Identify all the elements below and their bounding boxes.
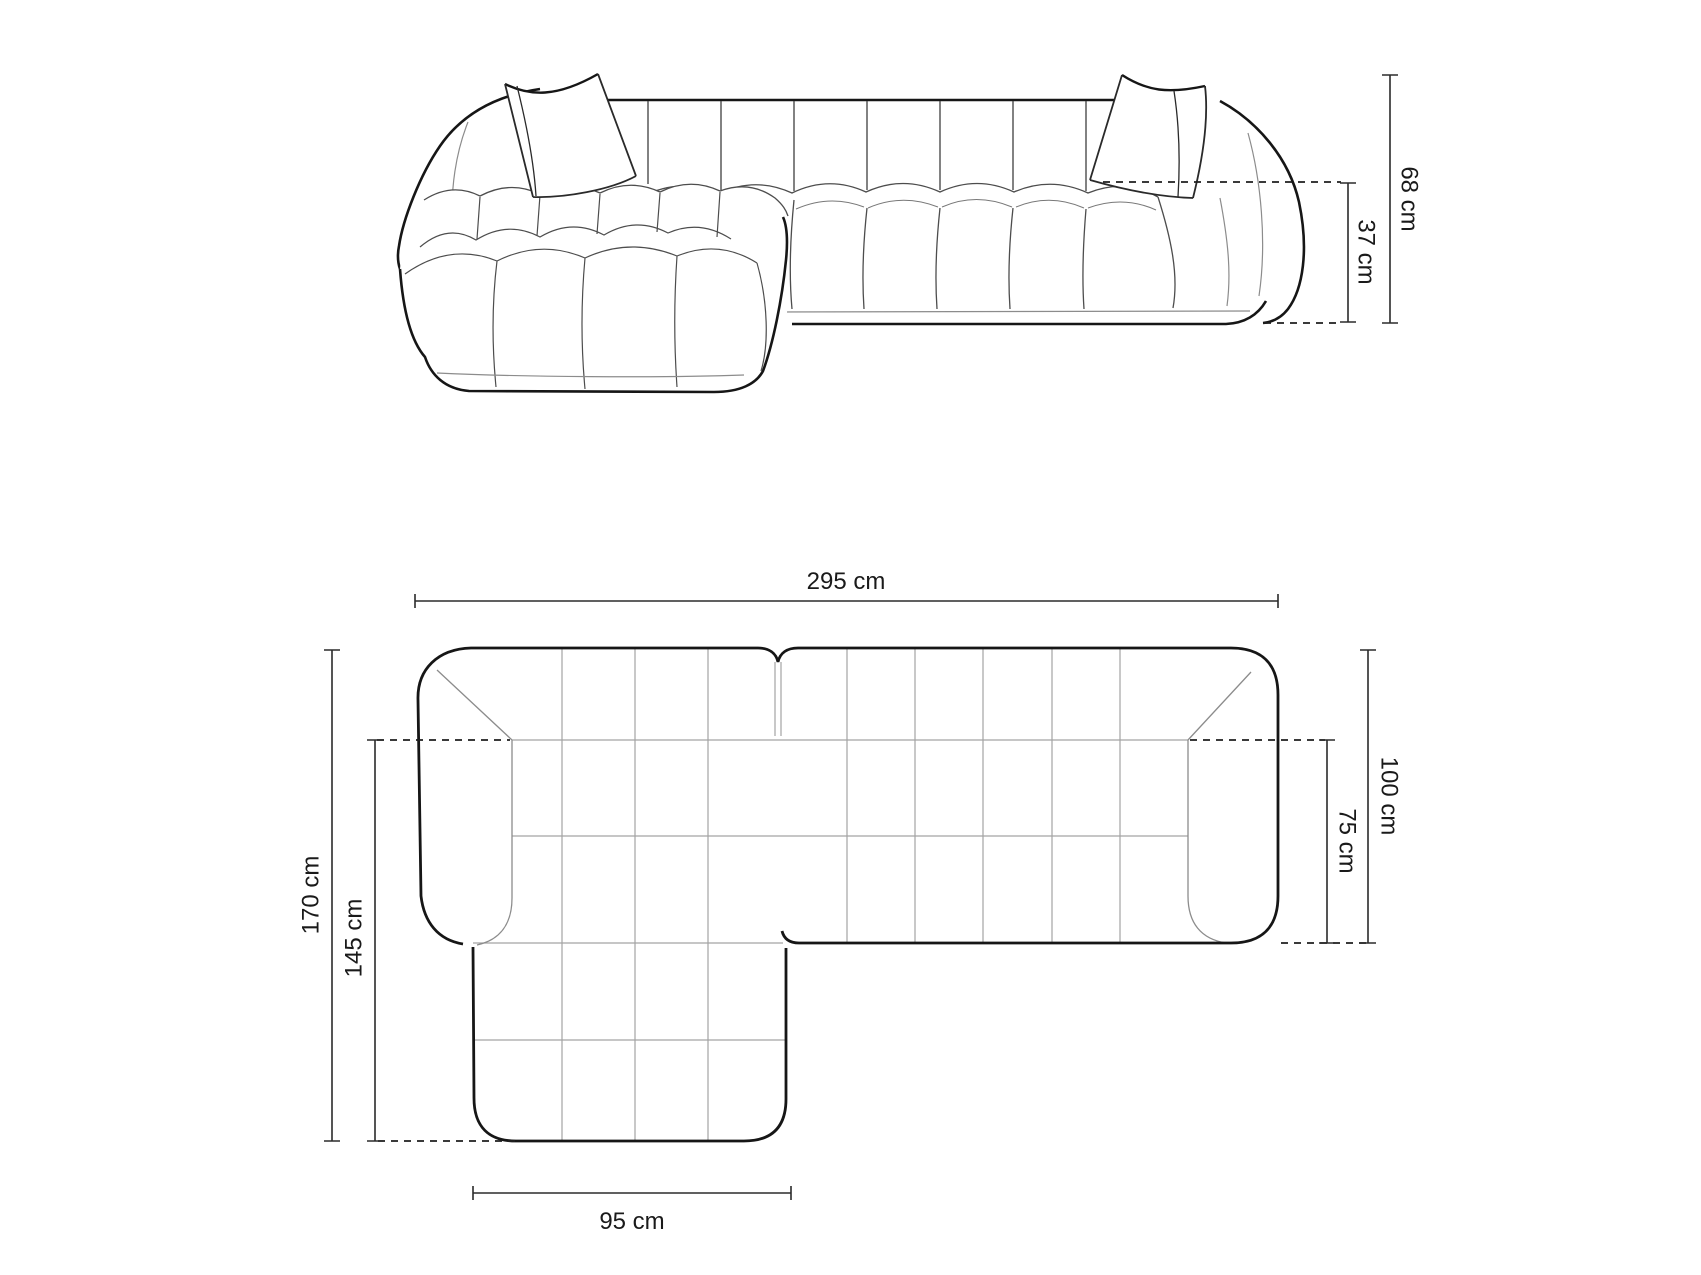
sofa-dimension-diagram: 68 cm 37 cm 295 cm 170 cm 145 cm 100 cm …	[0, 0, 1701, 1275]
dim-label-total-width: 295 cm	[807, 568, 886, 595]
dim-label-seat-inner-depth: 75 cm	[1334, 808, 1361, 873]
top-arm-inner-lines	[437, 670, 1251, 945]
right-pillow-fill	[1090, 75, 1206, 198]
dim-label-seat-height: 37 cm	[1353, 219, 1380, 284]
front-seat-cushion-scallops-inner	[796, 200, 1156, 211]
dim-label-total-height: 68 cm	[1396, 166, 1423, 231]
dim-line-total-depth	[324, 650, 340, 1141]
dim-line-body-depth	[1360, 650, 1376, 943]
top-chaise-outline	[473, 947, 786, 1141]
dim-label-chaise-inner-depth: 145 cm	[341, 899, 368, 978]
front-seat-seams	[790, 197, 1175, 309]
top-body-outline	[418, 648, 1278, 944]
front-view	[398, 74, 1304, 392]
top-grid-lines	[473, 649, 1188, 1140]
dim-line-total-width	[415, 594, 1278, 608]
front-chaise-body	[400, 184, 789, 392]
left-pillow-fill	[505, 74, 636, 197]
front-left-pillow	[505, 74, 636, 197]
dim-label-body-depth: 100 cm	[1376, 757, 1403, 836]
top-view	[418, 648, 1278, 1141]
front-back-channel-lines	[648, 101, 1086, 191]
dim-line-chaise-inner-depth	[367, 740, 383, 1141]
front-right-pillow	[1090, 75, 1206, 198]
top-dimensions: 295 cm 170 cm 145 cm 100 cm 75 cm 95 cm	[298, 568, 1403, 1235]
dim-label-total-depth: 170 cm	[298, 856, 325, 935]
diagram-svg: 68 cm 37 cm 295 cm 170 cm 145 cm 100 cm …	[0, 0, 1701, 1275]
front-plinth-top-line	[764, 311, 1250, 312]
front-right-arm-inner-lines	[1220, 133, 1263, 306]
front-extension-dashed-lines	[1103, 182, 1341, 323]
dim-line-chaise-width	[473, 1186, 791, 1200]
dim-line-seat-inner-depth	[1319, 740, 1335, 943]
dim-label-chaise-width: 95 cm	[599, 1208, 664, 1235]
